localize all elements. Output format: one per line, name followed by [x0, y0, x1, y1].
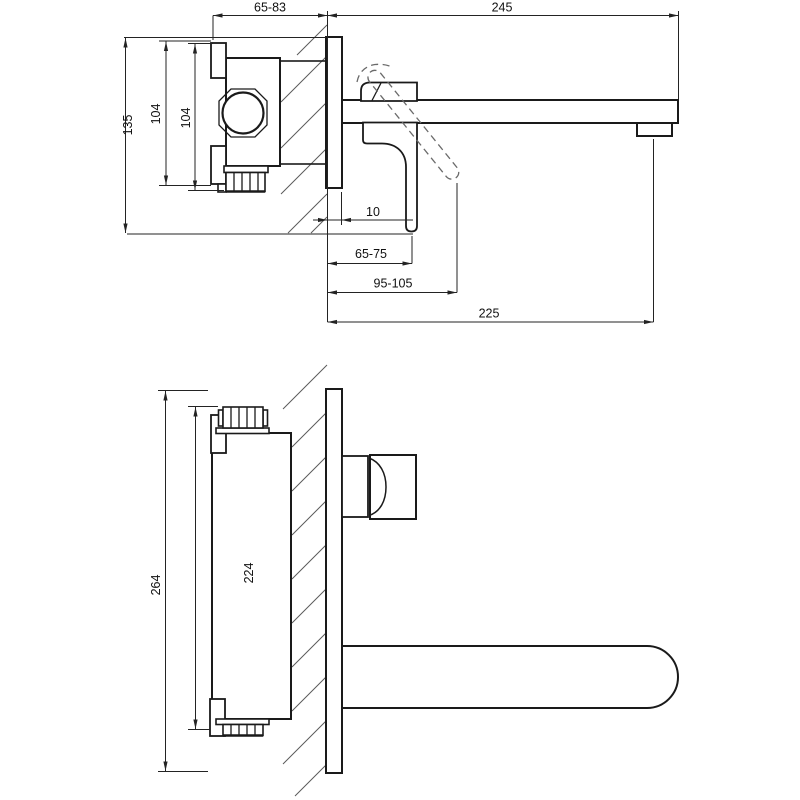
hatch-line: [281, 56, 327, 102]
arrowhead: [193, 720, 197, 730]
handle-alt-position-dome-dashed: [357, 64, 393, 82]
dimension-lines-plan: [166, 391, 196, 771]
nut-base-bar: [216, 428, 269, 434]
hatch-line: [292, 588, 327, 623]
arrowhead: [123, 38, 127, 48]
body-neck: [280, 61, 327, 164]
nut-pair: [223, 725, 263, 736]
faucet-dimension-drawing: 65-83 245 135 104 104 10 65-75 95-105 22…: [0, 0, 800, 800]
supply-nuts-side: [224, 166, 268, 192]
handle-lever-top: [361, 83, 417, 102]
valve-cartridge-circle: [223, 93, 264, 134]
arrowhead: [213, 13, 223, 17]
dim-label-spout-length: 245: [492, 1, 513, 15]
mounting-flange-bottom: [211, 146, 226, 184]
drawing-canvas: 65-83 245 135 104 104 10 65-75 95-105 22…: [0, 0, 800, 800]
wall-plate-plan: [326, 389, 342, 773]
arrowhead: [644, 320, 654, 324]
nut-base-bar: [216, 719, 269, 725]
hatch-line: [292, 544, 327, 579]
arrowhead: [193, 44, 197, 54]
aerator: [637, 123, 672, 136]
wall-hatching-side: [281, 25, 327, 233]
wall-plate-side: [326, 37, 342, 188]
hatch-line: [297, 25, 327, 55]
handle-cartridge-plan: [342, 456, 368, 517]
dim-label-height-total: 135: [121, 115, 135, 136]
hatch-line: [295, 764, 327, 796]
arrowhead: [342, 218, 352, 222]
arrowheads-plan: [163, 391, 197, 771]
dim-label-body-height-inner: 104: [179, 108, 193, 129]
spout-plan: [342, 646, 678, 708]
hatch-line: [292, 500, 327, 535]
supply-nuts-top-plan: [216, 407, 269, 434]
arrowhead: [328, 261, 338, 265]
hatch-line: [292, 412, 327, 447]
side-view: 65-83 245 135 104 104 10 65-75 95-105 22…: [121, 1, 679, 325]
nut-base-bar: [224, 166, 268, 173]
dim-label-body-length: 224: [242, 563, 256, 584]
arrowhead: [193, 407, 197, 417]
dim-label-handle-max: 95-105: [374, 277, 413, 291]
extension-lines-side: [124, 11, 679, 322]
dim-label-spout-projection: 225: [479, 307, 500, 321]
arrowhead: [448, 290, 458, 294]
dim-label-plate-length: 264: [149, 575, 163, 596]
arrowhead: [123, 224, 127, 234]
nut-pair: [223, 407, 263, 428]
dim-label-body-height-outer: 104: [149, 104, 163, 125]
mounting-flange-top: [211, 43, 226, 78]
arrowhead: [163, 762, 167, 772]
plan-view: 264 224: [149, 365, 678, 796]
hatch-line: [281, 102, 327, 148]
hatch-line: [283, 720, 327, 764]
arrowhead: [318, 13, 328, 17]
hatch-line: [281, 148, 327, 194]
nut-pair: [226, 173, 265, 192]
arrowhead: [403, 261, 413, 265]
hatch-line: [288, 194, 327, 233]
dim-label-depth-adjust: 65-83: [254, 1, 286, 15]
arrowhead: [328, 320, 338, 324]
supply-nuts-bottom-plan: [216, 719, 269, 736]
dim-label-handle-min: 65-75: [355, 247, 387, 261]
extension-lines-plan: [158, 391, 218, 772]
hatch-line: [292, 456, 327, 491]
arrowhead: [328, 13, 338, 17]
spout-side: [342, 100, 678, 123]
arrowhead: [669, 13, 679, 17]
arrowhead: [164, 42, 168, 52]
arrowhead: [328, 290, 338, 294]
hatch-line: [292, 676, 327, 711]
arrowhead: [164, 176, 168, 186]
hatch-line: [292, 632, 327, 667]
arrowhead: [163, 391, 167, 401]
dim-label-plate-offset: 10: [366, 205, 380, 219]
hatch-line: [283, 365, 327, 409]
handle-knob-plan: [370, 455, 416, 519]
